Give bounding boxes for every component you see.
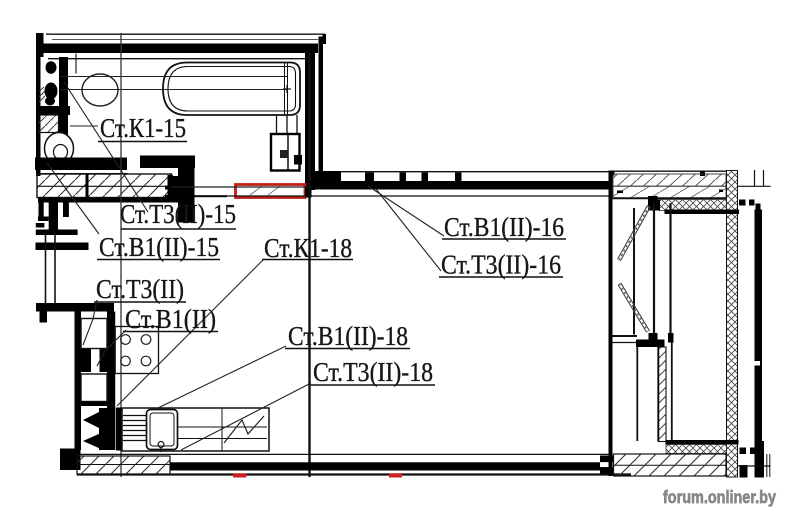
svg-text:Ст.В1(II): Ст.В1(II) — [125, 304, 216, 334]
svg-text:Ст.В1(II)-16: Ст.В1(II)-16 — [444, 212, 564, 242]
svg-text:Ст.Т3(II)-15: Ст.Т3(II)-15 — [120, 199, 236, 229]
svg-text:forum.onliner.by: forum.onliner.by — [663, 487, 776, 507]
svg-text:Ст.Т3(II)-18: Ст.Т3(II)-18 — [313, 357, 433, 387]
svg-text:Ст.В1(II)-15: Ст.В1(II)-15 — [99, 232, 219, 262]
svg-text:Ст.Т3(II)-16: Ст.Т3(II)-16 — [441, 250, 561, 280]
svg-text:Ст.К1-18: Ст.К1-18 — [264, 233, 352, 263]
svg-text:Ст.В1(II)-18: Ст.В1(II)-18 — [288, 321, 408, 351]
svg-text:Ст.К1-15: Ст.К1-15 — [100, 113, 186, 143]
svg-text:Ст.Т3(II): Ст.Т3(II) — [96, 274, 184, 304]
